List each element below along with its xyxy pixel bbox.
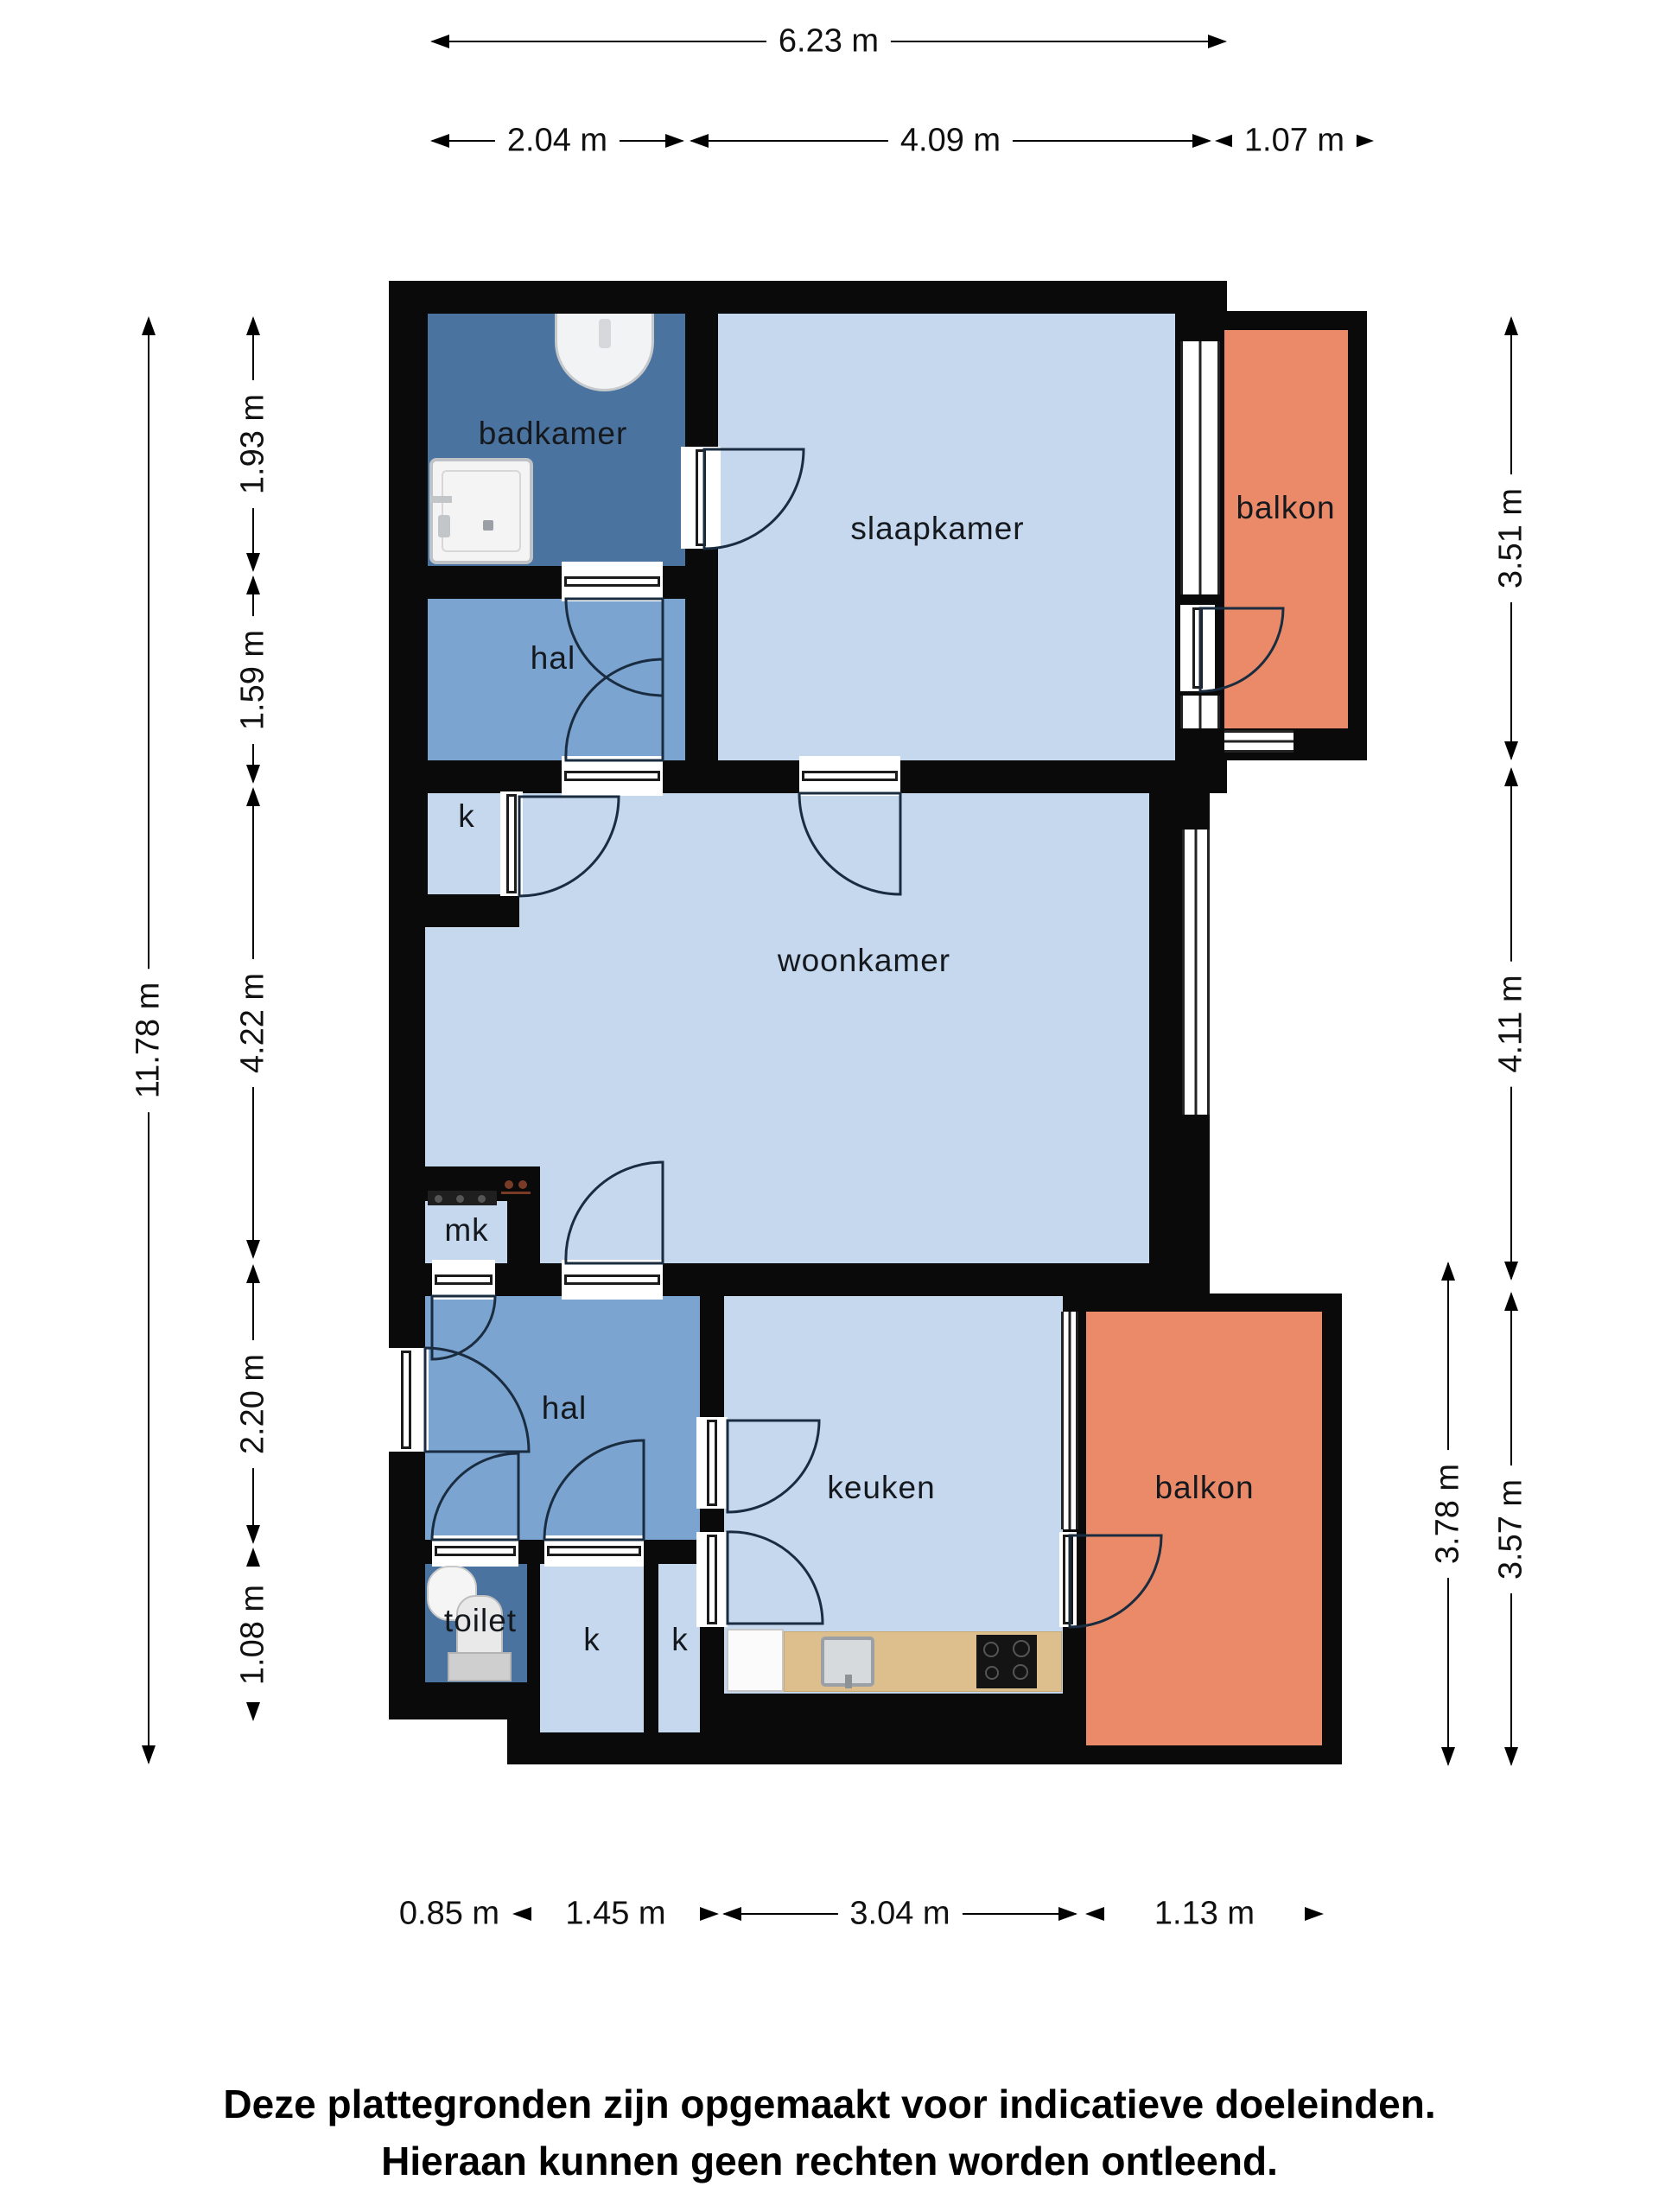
dim-left-seg-5: 1.08 m [252,1549,254,1719]
dim-top-seg-1-label: 2.04 m [495,123,620,160]
dim-top-total: 6.23 m [432,41,1225,42]
dim-bottom-seg-3: 3.04 m [724,1913,1076,1915]
dim-top-seg-2: 4.09 m [691,140,1210,142]
dim-top-total-label: 6.23 m [766,23,891,60]
dim-right-seg-2: 4.11 m [1510,769,1512,1279]
label-hal-top: hal [531,640,575,677]
dim-bottom-seg-1: 0.85 m [389,1913,510,1915]
floorplan-page: { "rooms": { "badkamer": "badkamer", "sl… [0,0,1659,2212]
label-k-top: k [458,798,475,835]
dim-left-seg-1: 1.93 m [252,318,254,570]
dim-left-seg-4-label: 2.20 m [235,1340,272,1468]
dim-right-seg-1-label: 3.51 m [1493,474,1530,602]
label-keuken: keuken [827,1470,935,1506]
fridge-icon [727,1629,784,1692]
cooktop-icon [976,1635,1037,1688]
dim-right-seg-3-label: 3.78 m [1430,1450,1467,1578]
label-balkon-low: balkon [1154,1470,1254,1506]
dim-bottom-seg-2: 1.45 m [514,1913,717,1915]
dim-left-seg-4: 2.20 m [252,1266,254,1542]
shower-icon [429,458,533,564]
dim-top-seg-1: 2.04 m [432,140,683,142]
dim-bottom-seg-4-label: 1.13 m [1142,1896,1267,1933]
kitchen-sink-icon [821,1637,874,1687]
label-woonkamer: woonkamer [778,943,950,979]
dim-left-total-label: 11.78 m [130,969,168,1112]
dim-left-seg-2-label: 1.59 m [235,615,272,743]
dim-bottom-seg-1-label: 0.85 m [387,1896,512,1933]
disclaimer-line-1: Deze plattegronden zijn opgemaakt voor i… [0,2081,1659,2127]
label-hal-low: hal [542,1390,587,1427]
dim-left-seg-3: 4.22 m [252,789,254,1257]
label-slaapkamer: slaapkamer [850,511,1024,547]
dim-right-seg-4: 3.57 m [1510,1294,1512,1764]
dim-left-seg-1-label: 1.93 m [235,380,272,508]
dim-right-seg-3: 3.78 m [1447,1263,1449,1764]
dim-top-seg-2-label: 4.09 m [888,123,1013,160]
dim-top-seg-3-label: 1.07 m [1232,123,1357,160]
dim-left-seg-5-label: 1.08 m [235,1570,272,1698]
dim-right-seg-2-label: 4.11 m [1493,961,1530,1086]
toilet-tank-icon [448,1652,512,1681]
dim-left-seg-2: 1.59 m [252,577,254,782]
dim-left-total: 11.78 m [148,318,149,1763]
label-balkon-top: balkon [1236,490,1335,526]
disclaimer-line-2: Hieraan kunnen geen rechten worden ontle… [0,2138,1659,2184]
dim-bottom-seg-4: 1.13 m [1087,1913,1322,1915]
dim-bottom-seg-3-label: 3.04 m [837,1896,962,1933]
dim-right-seg-1: 3.51 m [1510,318,1512,759]
dim-bottom-seg-2-label: 1.45 m [553,1896,677,1933]
dim-top-seg-3: 1.07 m [1217,140,1372,142]
label-mk: mk [444,1212,488,1249]
label-toilet: toilet [444,1603,517,1639]
label-k-low-1: k [583,1622,601,1658]
dim-left-seg-3-label: 4.22 m [235,959,272,1087]
label-badkamer: badkamer [479,416,628,452]
dim-right-seg-4-label: 3.57 m [1493,1465,1530,1592]
label-k-low-2: k [671,1622,689,1658]
socket-icon [501,1180,531,1198]
mk-meter-icon [428,1191,497,1205]
